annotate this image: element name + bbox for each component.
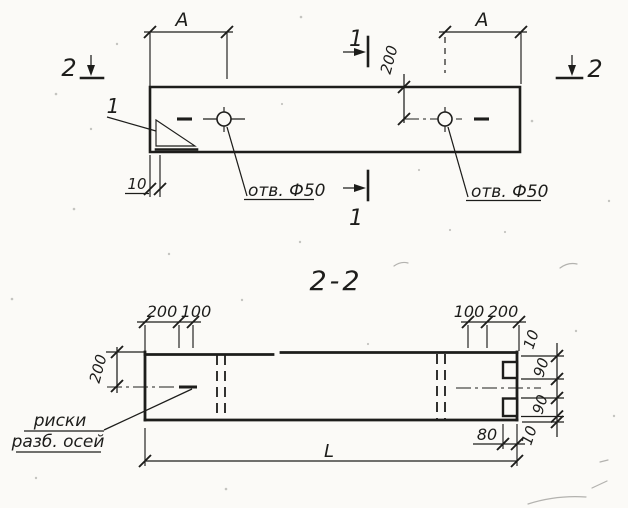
dim-A-left: A <box>144 9 233 86</box>
dim-side-200-label: 200 <box>86 353 111 385</box>
dim-A-right: A <box>439 9 527 84</box>
dim-hole-offset-200: 200 <box>377 44 410 125</box>
corner-triangle-mark <box>156 120 197 150</box>
dim-100-top-right: 100 <box>454 302 485 321</box>
detail-callout-label: 1 <box>107 94 120 118</box>
dims-top-left: 200 100 <box>137 302 211 351</box>
axis-note-line2: разб. осей <box>11 432 105 452</box>
dim-200-top-left: 200 <box>147 302 178 321</box>
section-title: 2-2 <box>309 266 362 297</box>
section-cut-1-top: 1 <box>343 27 368 66</box>
section-cut-2-right: 2 <box>557 55 603 83</box>
dim-10-label: 10 <box>127 175 146 193</box>
end-notches <box>503 362 517 416</box>
section-cut-1-top-label: 1 <box>349 27 363 52</box>
technical-drawing: 1 A A <box>0 0 628 508</box>
section-cut-1-bottom-label: 1 <box>349 206 363 231</box>
axis-center-line <box>107 387 541 388</box>
axis-note-line1: риски <box>33 411 87 431</box>
section-cut-2-right-label: 2 <box>587 55 602 83</box>
dim-L-label: L <box>324 441 334 462</box>
hole-label-right-text: отв. Ф50 <box>471 182 548 202</box>
dim-right-10-top: 10 <box>520 328 543 352</box>
dim-side-200: 200 <box>86 346 144 393</box>
section-beam-outline <box>145 352 517 420</box>
dim-80-label: 80 <box>477 425 497 444</box>
section-cut-1-bottom: 1 <box>343 171 368 231</box>
dim-L: L <box>139 424 523 467</box>
section-cut-2-left: 2 <box>61 54 103 82</box>
hole-label-left-text: отв. Ф50 <box>248 181 325 201</box>
hole-left <box>177 107 245 132</box>
dims-top-right: 100 200 <box>454 302 526 351</box>
dim-200-top-right: 200 <box>488 302 519 321</box>
dim-A-left-label: A <box>174 9 189 31</box>
plan-view: 1 A A <box>61 9 602 231</box>
hole-label-right: отв. Ф50 <box>448 127 548 202</box>
dim-100-top-left: 100 <box>181 302 212 321</box>
hole-right <box>404 107 489 132</box>
detail-callout: 1 <box>107 94 156 131</box>
dim-right-90-top: 90 <box>530 356 553 380</box>
section-cut-2-left-label: 2 <box>61 54 76 82</box>
dim-edge-10: 10 <box>125 155 166 197</box>
dim-A-right-label: A <box>474 9 489 31</box>
section-view: 2-2 200 <box>11 266 564 467</box>
dim-200-label: 200 <box>377 44 402 76</box>
hole-label-left: отв. Ф50 <box>227 127 325 201</box>
hidden-joint-lines <box>217 354 445 419</box>
drawing-sheet: 1 A A <box>0 0 628 508</box>
dim-right-90-bottom: 90 <box>529 393 552 417</box>
